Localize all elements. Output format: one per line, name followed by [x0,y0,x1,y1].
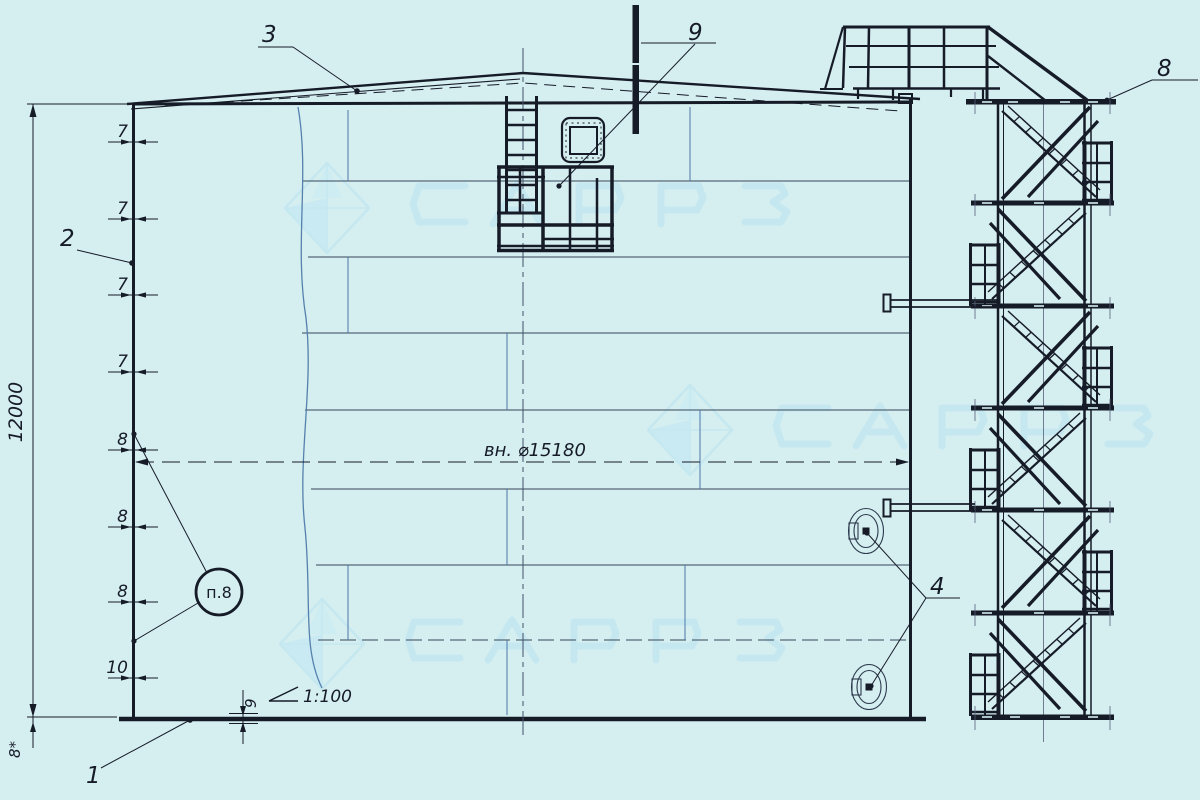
course-thickness: 7 [117,275,128,295]
callout-8: 8 [1105,56,1198,102]
slope-mark: 1:100 [269,687,352,707]
dim-bottom-plate-left-value: 8* [6,740,24,758]
course-thickness: 7 [117,199,128,219]
callout-1: 1 [86,717,193,789]
callout-3: 3 [258,22,360,94]
watermark-logo-icon [280,599,364,689]
vent-mast [630,5,642,134]
callout-2: 2 [60,226,135,266]
course-thickness: 8 [117,582,128,602]
roof-hatch [562,118,604,162]
watermark [280,163,1150,689]
watermark-text-shapes [776,406,1150,446]
watermark-logo-icon [285,163,369,253]
roof-fittings [497,5,642,251]
callout-3-label: 3 [262,22,277,48]
slope-value: 1:100 [303,687,352,707]
dim-total-height: 12000 [5,104,131,717]
callout-2-label: 2 [60,226,75,252]
dim-total-height-value: 12000 [5,382,27,442]
course-thickness: 10 [106,658,128,678]
weld-note-label: п.8 [206,583,232,602]
roof-platform [820,27,1087,101]
watermark-text-shapes [413,184,787,224]
tank-shell [119,48,926,740]
callout-8-label: 8 [1157,56,1172,82]
callout-4: 4 [864,530,960,688]
callout-4-label: 4 [930,574,945,600]
roof-hidden-line [165,83,900,111]
dim-bottom-plate-left: 8* [6,700,36,758]
stair-head-rail [988,27,1087,100]
tank-elevation-drawing: 12000 8* 9 1:100 вн. ⌀151 [0,0,1200,800]
external-staircase [966,92,1116,742]
course-thickness: 8 [117,507,128,527]
dim-inner-diameter-value: вн. ⌀15180 [484,440,586,461]
dim-bottom-plate-edge-value: 9 [242,698,260,708]
course-thickness: 7 [117,122,128,142]
callout-9-label: 9 [688,20,703,46]
course-thickness: 8 [117,430,128,450]
course-thickness: 7 [117,352,128,372]
callout-1-label: 1 [86,763,101,789]
